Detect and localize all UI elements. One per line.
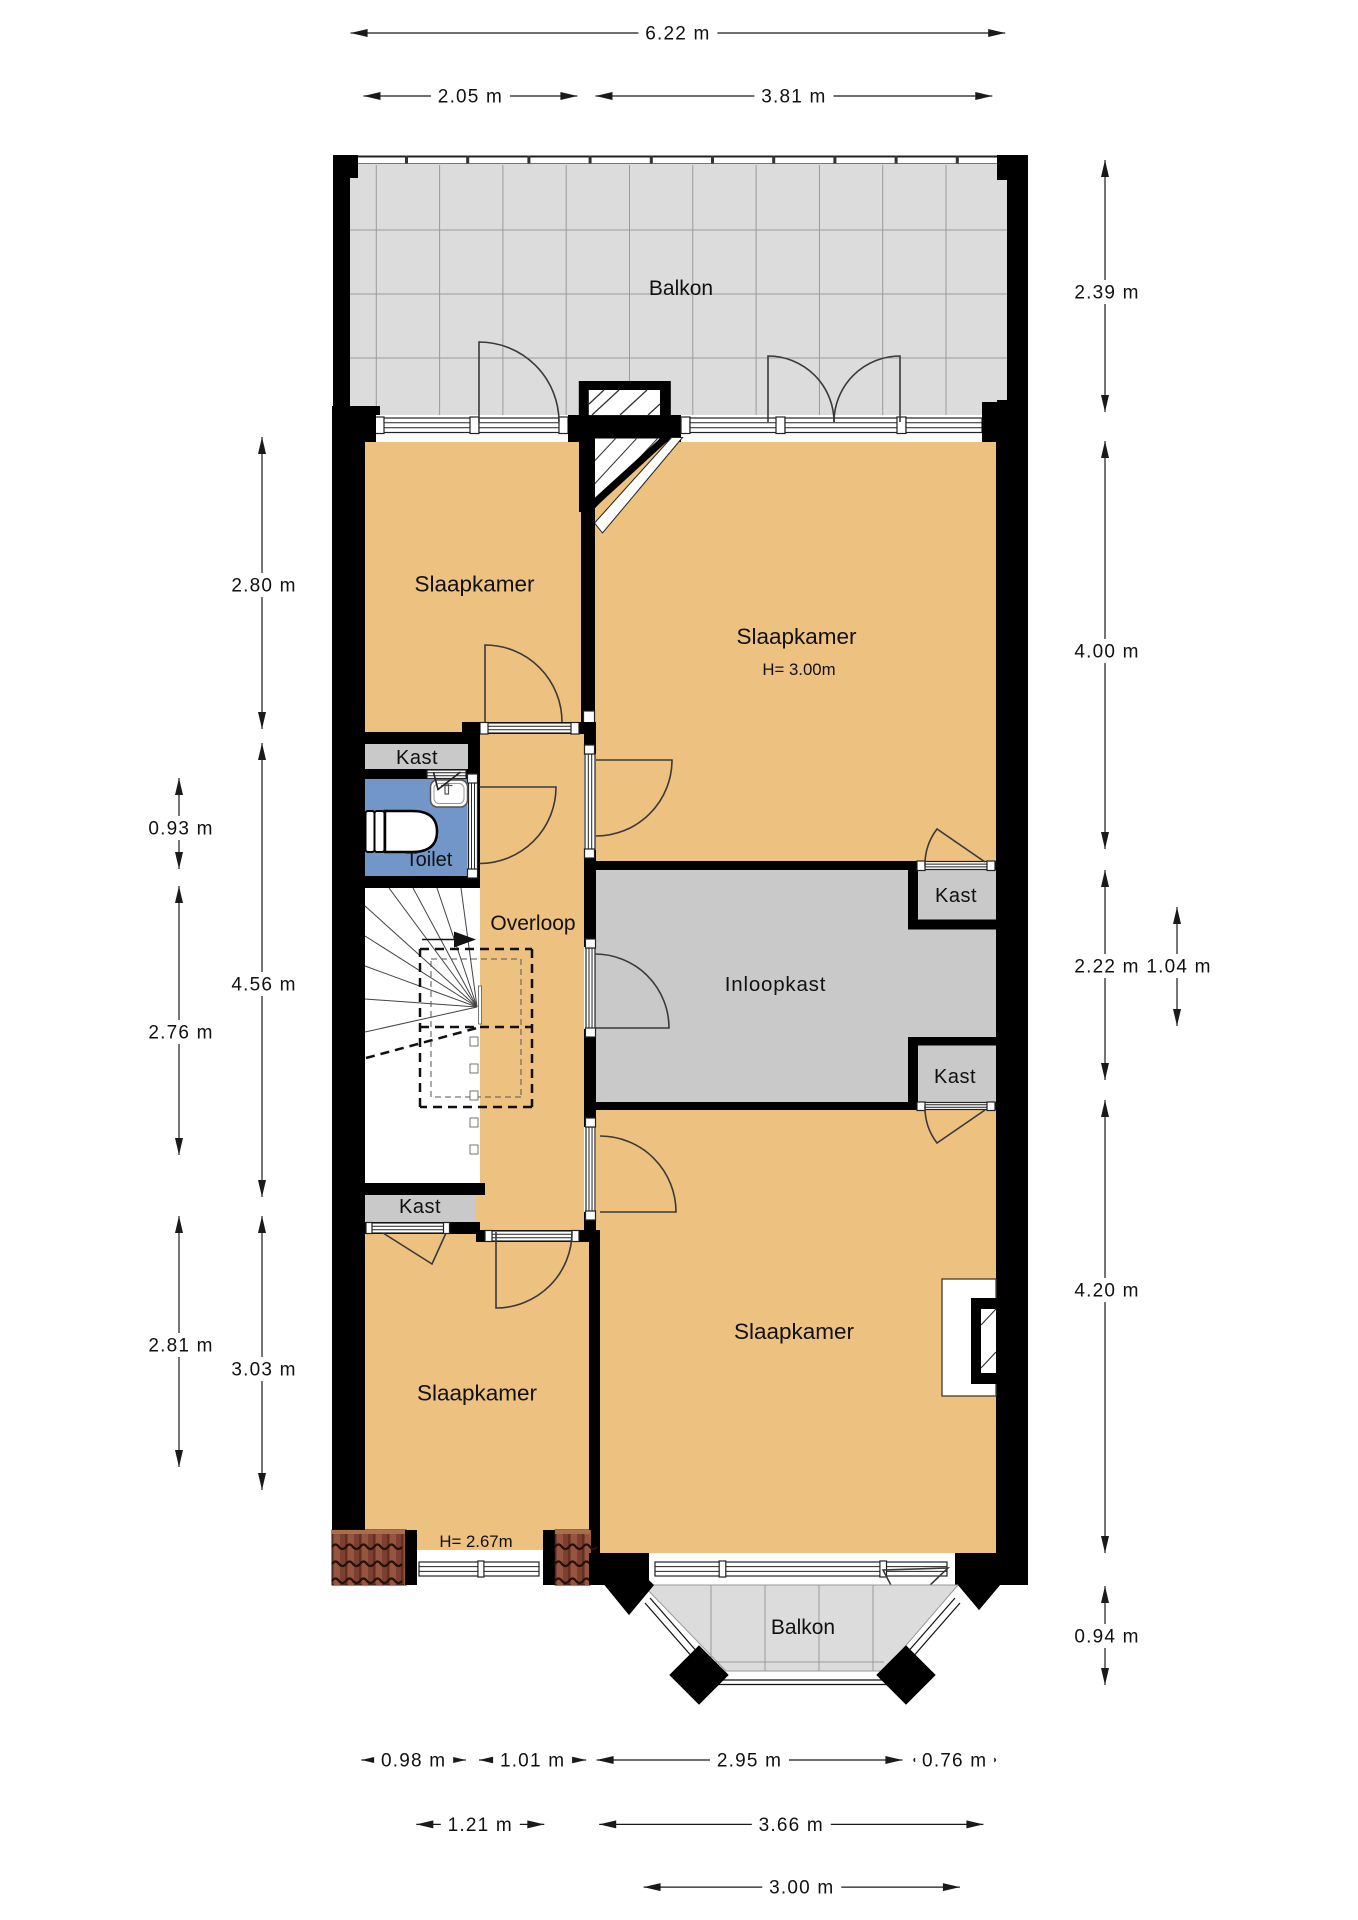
- svg-text:2.39 m: 2.39 m: [1074, 283, 1139, 304]
- svg-text:Inloopkast: Inloopkast: [725, 973, 826, 996]
- svg-text:Kast: Kast: [396, 747, 438, 769]
- svg-text:2.76 m: 2.76 m: [148, 1023, 213, 1044]
- svg-text:1.04 m: 1.04 m: [1146, 957, 1211, 978]
- svg-text:0.98 m: 0.98 m: [381, 1751, 446, 1772]
- svg-text:3.66 m: 3.66 m: [759, 1815, 824, 1836]
- svg-text:3.03 m: 3.03 m: [231, 1360, 296, 1381]
- svg-text:H= 2.67m: H= 2.67m: [439, 1532, 512, 1551]
- svg-text:Slaapkamer: Slaapkamer: [417, 1381, 538, 1406]
- svg-text:0.93 m: 0.93 m: [148, 819, 213, 840]
- svg-text:Kast: Kast: [934, 1066, 976, 1088]
- svg-text:Kast: Kast: [399, 1196, 441, 1218]
- svg-text:Toilet: Toilet: [406, 849, 453, 871]
- svg-text:2.80 m: 2.80 m: [231, 576, 296, 597]
- svg-text:Balkon: Balkon: [771, 1616, 835, 1639]
- svg-text:Slaapkamer: Slaapkamer: [736, 624, 857, 649]
- svg-text:2.95 m: 2.95 m: [717, 1751, 782, 1772]
- svg-text:Balkon: Balkon: [649, 277, 713, 300]
- svg-text:6.22 m: 6.22 m: [645, 24, 710, 45]
- svg-text:Overloop: Overloop: [490, 912, 575, 935]
- svg-text:2.81 m: 2.81 m: [148, 1336, 213, 1357]
- svg-text:Slaapkamer: Slaapkamer: [734, 1319, 855, 1344]
- svg-text:H= 3.00m: H= 3.00m: [762, 660, 835, 679]
- svg-text:4.00 m: 4.00 m: [1074, 642, 1139, 663]
- svg-text:3.00 m: 3.00 m: [769, 1878, 834, 1899]
- svg-text:0.76 m: 0.76 m: [922, 1751, 987, 1772]
- svg-text:4.20 m: 4.20 m: [1074, 1281, 1139, 1302]
- svg-text:Kast: Kast: [935, 885, 977, 907]
- svg-text:0.94 m: 0.94 m: [1074, 1627, 1139, 1648]
- svg-text:1.21 m: 1.21 m: [448, 1815, 513, 1836]
- svg-text:1.01 m: 1.01 m: [500, 1751, 565, 1772]
- svg-text:3.81 m: 3.81 m: [761, 87, 826, 108]
- svg-text:Slaapkamer: Slaapkamer: [414, 572, 535, 597]
- svg-text:2.05 m: 2.05 m: [438, 87, 503, 108]
- svg-text:4.56 m: 4.56 m: [231, 975, 296, 996]
- svg-text:2.22 m: 2.22 m: [1074, 957, 1139, 978]
